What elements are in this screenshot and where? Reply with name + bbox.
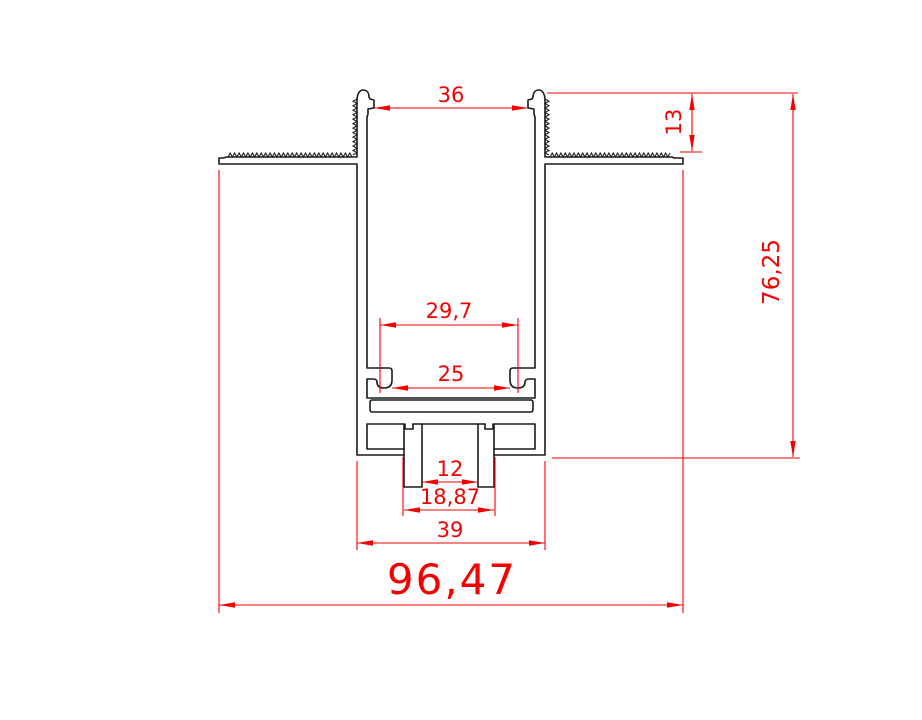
- profile-geometry: [219, 90, 683, 487]
- cavity-right: [494, 424, 535, 449]
- drawing-canvas: 36 13 76,25 29,7 25 12 18,87 39 96,47: [0, 0, 922, 720]
- cavity-left: [367, 424, 404, 449]
- profile-drawing: 36 13 76,25 29,7 25 12 18,87 39 96,47: [0, 0, 922, 720]
- dimension-label-clip-span: 25: [438, 362, 465, 386]
- dimension-label-body-width: 39: [437, 518, 464, 542]
- dimension-label-overall-height: 76,25: [759, 239, 785, 305]
- notch-right: [485, 424, 493, 429]
- dimension-label-top-opening: 36: [438, 83, 465, 107]
- dimension-label-slot-outer: 18,87: [420, 485, 480, 509]
- wire-slot: [370, 400, 533, 412]
- knurling-left-flange: [228, 153, 352, 157]
- profile-outline: [219, 90, 683, 487]
- notch-left: [405, 424, 413, 429]
- dimension-label-slot-inner: 12: [437, 457, 464, 481]
- dimension-label-overall-width: 96,47: [387, 555, 517, 604]
- dimension-annotations: 36 13 76,25 29,7 25 12 18,87 39 96,47: [219, 83, 800, 613]
- dimension-label-inner-width: 29,7: [426, 299, 473, 323]
- dimension-label-recess-depth: 13: [662, 109, 686, 136]
